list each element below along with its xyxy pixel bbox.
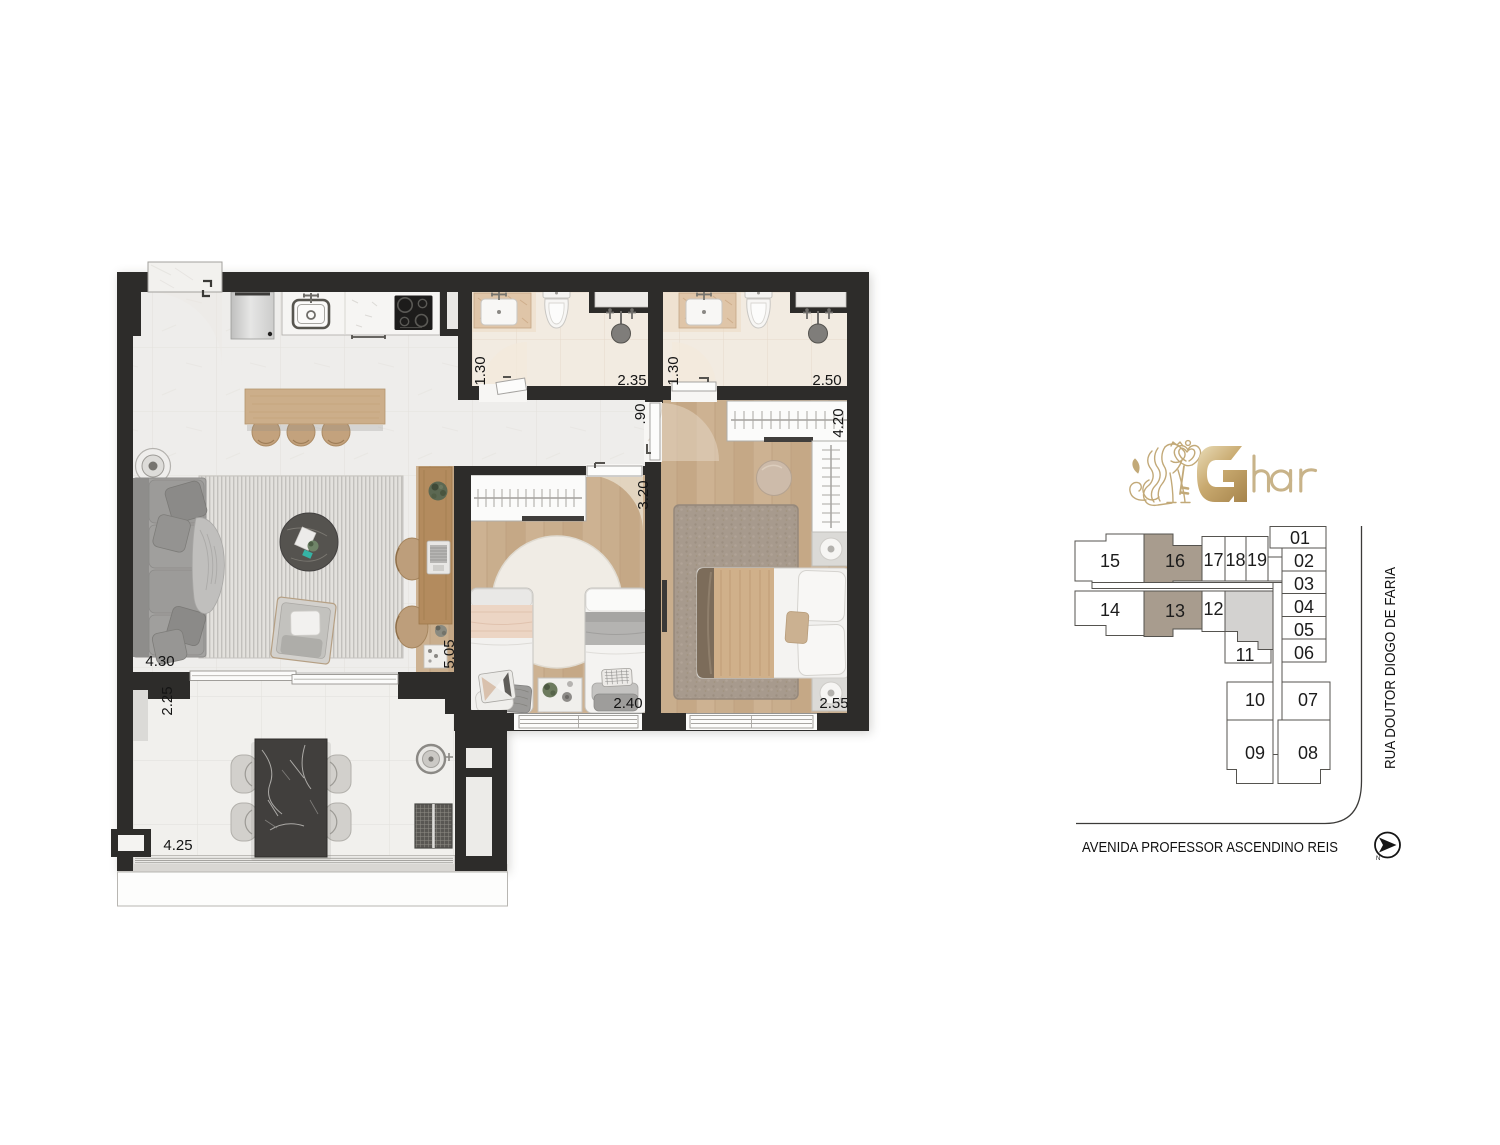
- svg-text:13: 13: [1165, 601, 1185, 621]
- svg-text:06: 06: [1294, 643, 1314, 663]
- svg-text:2.40: 2.40: [613, 695, 642, 712]
- svg-text:4.30: 4.30: [145, 653, 174, 670]
- svg-text:14: 14: [1100, 600, 1120, 620]
- svg-text:2.25: 2.25: [159, 686, 176, 715]
- svg-text:AVENIDA PROFESSOR ASCENDINO RE: AVENIDA PROFESSOR ASCENDINO REIS: [1082, 839, 1338, 856]
- svg-text:03: 03: [1294, 574, 1314, 594]
- svg-text:12: 12: [1203, 599, 1223, 619]
- svg-text:07: 07: [1298, 690, 1318, 710]
- svg-text:2.50: 2.50: [812, 372, 841, 389]
- svg-text:08: 08: [1298, 743, 1318, 763]
- svg-text:10: 10: [1245, 690, 1265, 710]
- svg-text:02: 02: [1294, 551, 1314, 571]
- svg-text:.90: .90: [632, 404, 649, 425]
- svg-text:RUA DOUTOR DIOGO DE FARIA: RUA DOUTOR DIOGO DE FARIA: [1382, 567, 1399, 769]
- svg-text:5.05: 5.05: [441, 639, 458, 668]
- svg-text:05: 05: [1294, 620, 1314, 640]
- svg-text:2.35: 2.35: [617, 372, 646, 389]
- svg-text:19: 19: [1247, 550, 1267, 570]
- svg-text:1.30: 1.30: [472, 356, 489, 385]
- svg-text:1.30: 1.30: [665, 356, 682, 385]
- svg-text:4.20: 4.20: [830, 408, 847, 437]
- svg-text:18: 18: [1225, 550, 1245, 570]
- svg-text:15: 15: [1100, 551, 1120, 571]
- svg-text:09: 09: [1245, 743, 1265, 763]
- svg-text:16: 16: [1165, 551, 1185, 571]
- svg-text:04: 04: [1294, 597, 1314, 617]
- svg-text:4.25: 4.25: [163, 837, 192, 854]
- svg-text:N: N: [1376, 856, 1380, 862]
- svg-text:3.20: 3.20: [635, 480, 652, 509]
- svg-text:17: 17: [1203, 550, 1223, 570]
- svg-text:2.55: 2.55: [819, 695, 848, 712]
- svg-text:01: 01: [1290, 528, 1310, 548]
- svg-text:11: 11: [1236, 645, 1255, 665]
